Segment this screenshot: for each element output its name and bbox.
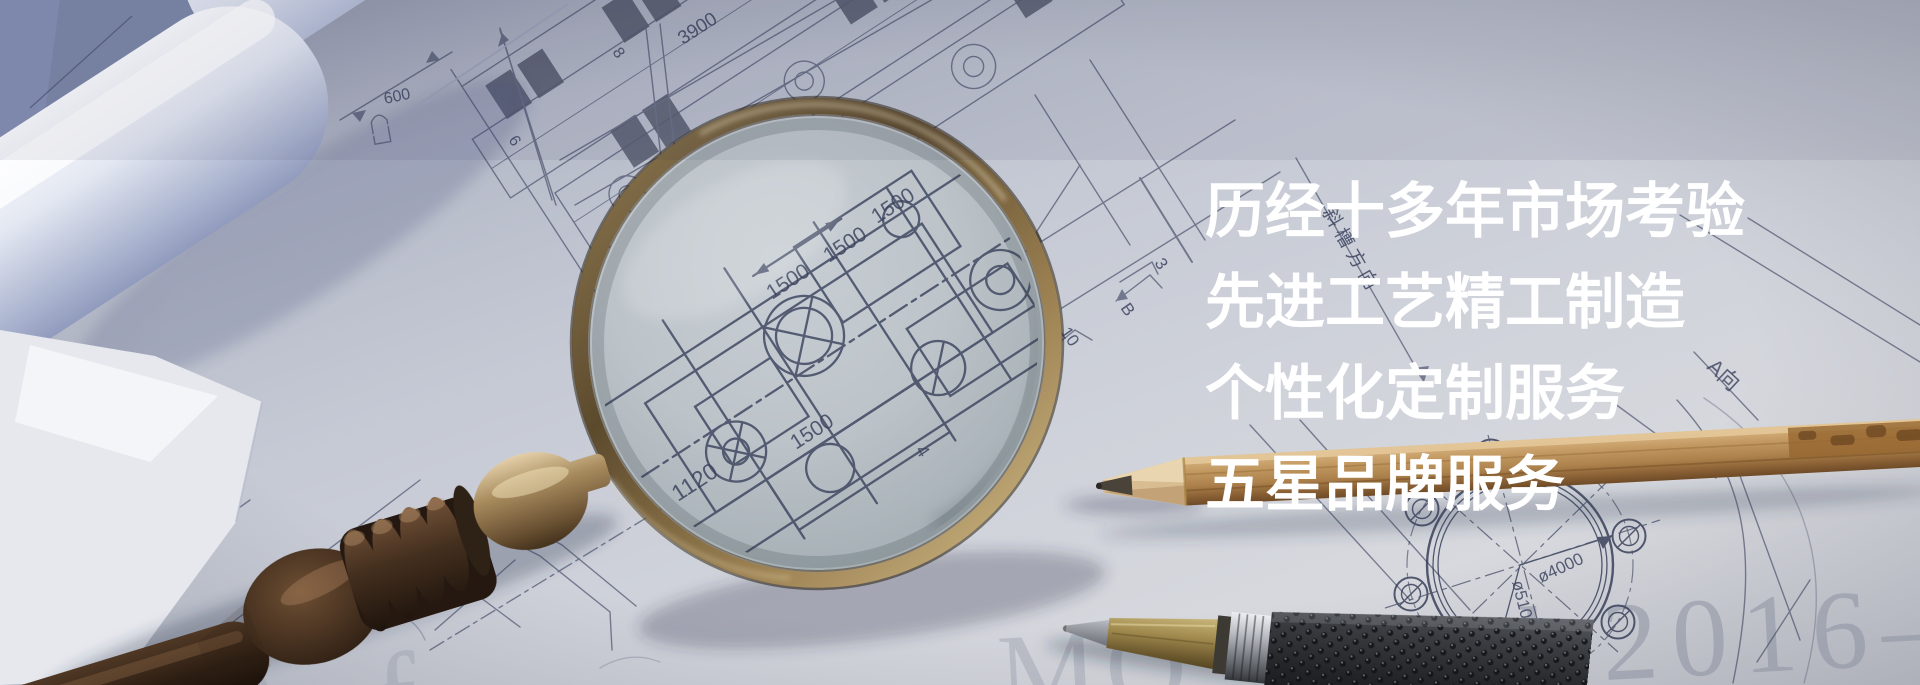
slogan-line-4: 五星品牌服务 bbox=[1205, 439, 1745, 530]
top-vignette bbox=[0, 0, 1920, 160]
hero-slogans: 历经十多年市场考验 先进工艺精工制造 个性化定制服务 五星品牌服务 bbox=[1205, 166, 1745, 530]
slogan-line-1: 历经十多年市场考验 bbox=[1205, 166, 1745, 257]
slogan-line-3: 个性化定制服务 bbox=[1205, 348, 1745, 439]
slogan-line-2: 先进工艺精工制造 bbox=[1205, 257, 1745, 348]
hero-banner: d 2016— MO B f bbox=[0, 0, 1920, 685]
